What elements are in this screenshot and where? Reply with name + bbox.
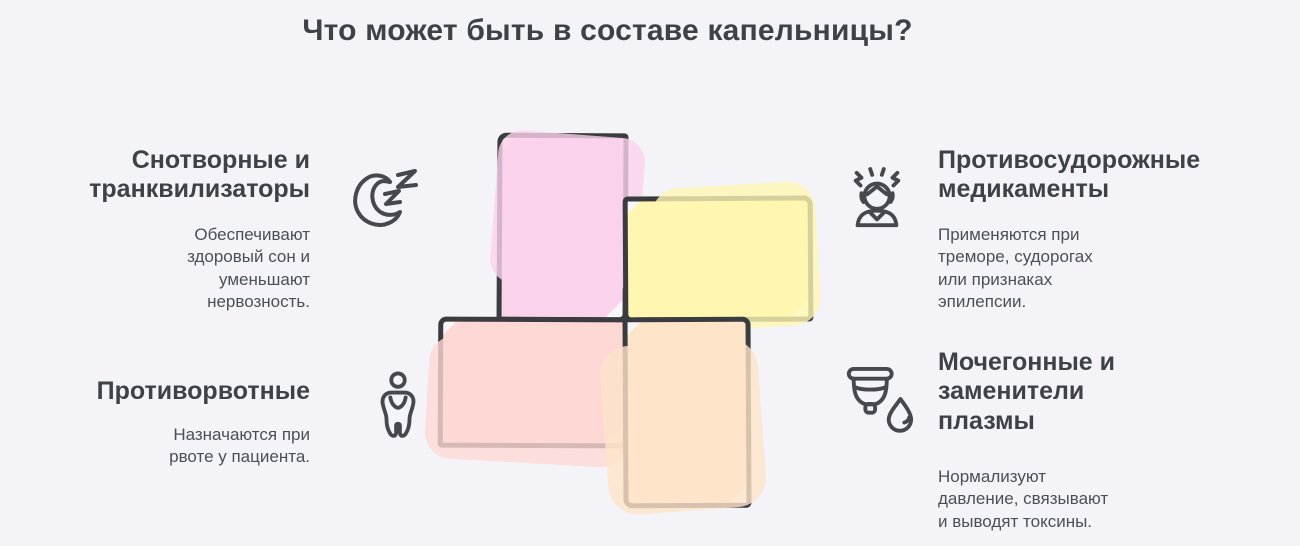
sleep-moon-icon	[341, 160, 421, 252]
anticonvulsants-heading: Противосудорожные медикаменты	[938, 146, 1228, 205]
nausea-person-icon	[375, 371, 421, 441]
cross-square-yellow	[623, 195, 814, 322]
page-title: Что может быть в составе капельницы?	[0, 14, 1215, 48]
diuretics-heading: Мочегонные и заменители плазмы	[938, 348, 1178, 436]
sedatives-description: Обеспечивают здоровый сон и уменьшают не…	[40, 224, 310, 314]
tremor-person-icon	[846, 160, 908, 242]
antiemetics-heading: Противорвотные	[40, 377, 310, 406]
diuretics-description: Нормализуют давление, связывают и выводя…	[938, 466, 1198, 533]
cup-drop-icon	[842, 364, 916, 442]
cross-square-orange	[623, 317, 752, 509]
anticonvulsants-description: Применяются при треморе, судорогах или п…	[938, 224, 1218, 314]
cross-square-pink	[497, 133, 629, 323]
infographic-canvas: Что может быть в составе капельницы? Сно…	[0, 0, 1300, 546]
sedatives-heading: Снотворные и транквилизаторы	[40, 146, 310, 205]
antiemetics-description: Назначаются при рвоте у пациента.	[40, 424, 310, 469]
